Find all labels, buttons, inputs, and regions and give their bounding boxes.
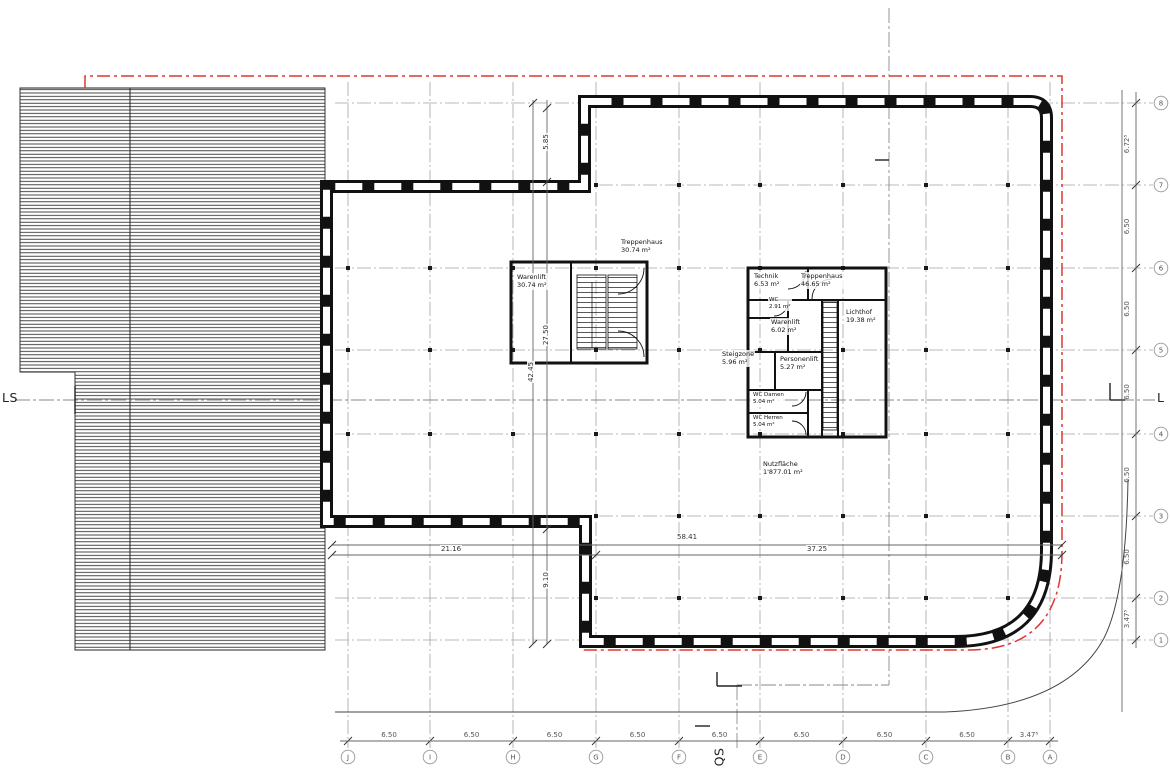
axis-letter-label: I [429,754,431,762]
axis-letter-label: F [677,754,681,762]
column-marker [594,596,598,600]
room-area: 30.74 m² [621,246,663,254]
axis-number-label: 8 [1159,100,1163,108]
dim-height-top: 5.85 [542,133,550,151]
section-label-l: L [1157,390,1164,405]
column-marker [924,266,928,270]
dim-height-bottom: 9.10 [542,571,550,589]
column-marker [924,183,928,187]
room-label-warenlift-ost: Warenlift 6.02 m² [770,318,801,335]
axis-number-label: 2 [1159,595,1163,603]
column-marker [677,183,681,187]
room-area: 5.04 m² [753,422,783,429]
column-marker [428,432,432,436]
dim-bottom-label: 6.50 [877,731,893,739]
room-label-lichthof: Lichthof 19.38 m² [845,308,877,325]
column-marker [346,348,350,352]
room-area: 5.27 m² [780,363,818,371]
axis-letter-label: E [758,754,762,762]
axis-letter-label: J [346,754,349,762]
column-marker [841,183,845,187]
column-marker [594,183,598,187]
room-label-warenlift-west: Warenlift 30.74 m² [516,273,548,290]
room-area: 6.53 m² [754,280,779,288]
axis-letter-label: D [840,754,845,762]
room-name: Steigzone [722,350,754,358]
plan-canvas: JIHGFEDCBA876543216.506.506.506.506.506.… [0,0,1170,771]
room-area: 30.74 m² [517,281,547,289]
column-marker [758,596,762,600]
dim-height-total: 42.45 [527,361,535,383]
room-name: Treppenhaus [621,238,663,246]
room-area: 19.38 m² [846,316,876,324]
column-marker [924,348,928,352]
column-marker [677,432,681,436]
column-marker [841,348,845,352]
column-marker [511,432,515,436]
room-label-steigzone: Steigzone 5.96 m² [721,350,755,367]
column-marker [677,596,681,600]
room-label-nutzflaeche: Nutzfläche 1'877.01 m² [762,460,804,477]
room-label-wc-damen: WC Damen 5.04 m² [752,392,785,406]
column-marker [1006,514,1010,518]
hatched-roof-area [20,88,325,650]
room-name: Treppenhaus [801,272,843,280]
room-label-personenlift: Personenlift 5.27 m² [779,355,819,372]
floor-plan-drawing: JIHGFEDCBA876543216.506.506.506.506.506.… [0,0,1170,771]
dim-right-label: 6.50 [1123,467,1131,483]
dim-height-mid: 27.50 [542,324,550,346]
dim-right-label: 3.47⁵ [1123,610,1131,629]
dim-width-right: 37.25 [806,545,828,553]
dim-right-label: 6.72⁵ [1123,135,1131,154]
room-area: 1'877.01 m² [763,468,803,476]
room-label-wc: WC 2.91 m² [768,297,792,311]
room-name: Personenlift [780,355,818,363]
dim-bottom-label: 3.47⁵ [1020,731,1039,739]
column-marker [1006,266,1010,270]
dim-bottom-label: 6.50 [712,731,728,739]
axis-letter-label: G [593,754,598,762]
column-marker [428,266,432,270]
room-area: 5.96 m² [722,358,754,366]
column-marker [924,596,928,600]
dim-bottom-label: 6.50 [630,731,646,739]
dim-right-label: 6.50 [1123,301,1131,317]
room-name: Technik [754,272,779,280]
dim-width-total: 58.41 [676,533,698,541]
dim-bottom-label: 6.50 [381,731,397,739]
column-marker [758,514,762,518]
column-marker [841,514,845,518]
dim-bottom-label: 6.50 [794,731,810,739]
axis-letter-label: H [510,754,515,762]
column-marker [594,514,598,518]
room-label-treppenhaus-west: Treppenhaus 30.74 m² [620,238,664,255]
axis-letter-label: B [1006,754,1011,762]
column-marker [594,266,598,270]
axis-number-label: 3 [1159,513,1163,521]
room-label-wc-herren: WC Herren 5.04 m² [752,415,784,429]
exterior-walls [327,102,1047,642]
column-marker [346,266,350,270]
room-area: 2.91 m² [769,304,791,311]
room-area: 5.04 m² [753,399,784,406]
column-marker [428,348,432,352]
column-marker [1006,183,1010,187]
dim-bottom-label: 6.50 [464,731,480,739]
dim-right-label: 6.50 [1123,384,1131,400]
column-marker [677,348,681,352]
axis-letter-label: A [1048,754,1053,762]
column-marker [758,432,762,436]
axis-letter-label: C [924,754,929,762]
dim-bottom-label: 6.50 [547,731,563,739]
column-marker [758,183,762,187]
dim-width-left: 21.16 [440,545,462,553]
column-marker [924,514,928,518]
room-name: Nutzfläche [763,460,803,468]
axis-number-label: 6 [1159,265,1164,273]
room-label-technik: Technik 6.53 m² [753,272,780,289]
room-name: Warenlift [771,318,800,326]
room-area: 46.65 m² [801,280,843,288]
dim-bottom-label: 6.50 [959,731,975,739]
column-marker [677,266,681,270]
axis-number-label: 5 [1159,347,1163,355]
room-name: Lichthof [846,308,876,316]
column-marker [1006,432,1010,436]
column-marker [841,596,845,600]
axis-number-label: 1 [1159,637,1163,645]
room-name: Warenlift [517,273,547,281]
column-marker [841,432,845,436]
dim-right-label: 6.50 [1123,219,1131,235]
room-label-treppenhaus-ost: Treppenhaus 46.65 m² [800,272,844,289]
column-marker [677,514,681,518]
axis-number-label: 7 [1159,182,1163,190]
column-marker [1006,348,1010,352]
column-marker [1006,596,1010,600]
column-marker [346,432,350,436]
column-marker [594,432,598,436]
axis-number-label: 4 [1159,431,1164,439]
room-area: 6.02 m² [771,326,800,334]
column-marker [924,432,928,436]
section-label-qs: QS [712,748,727,767]
core-east [748,268,886,437]
section-label-ls: LS [2,390,18,405]
